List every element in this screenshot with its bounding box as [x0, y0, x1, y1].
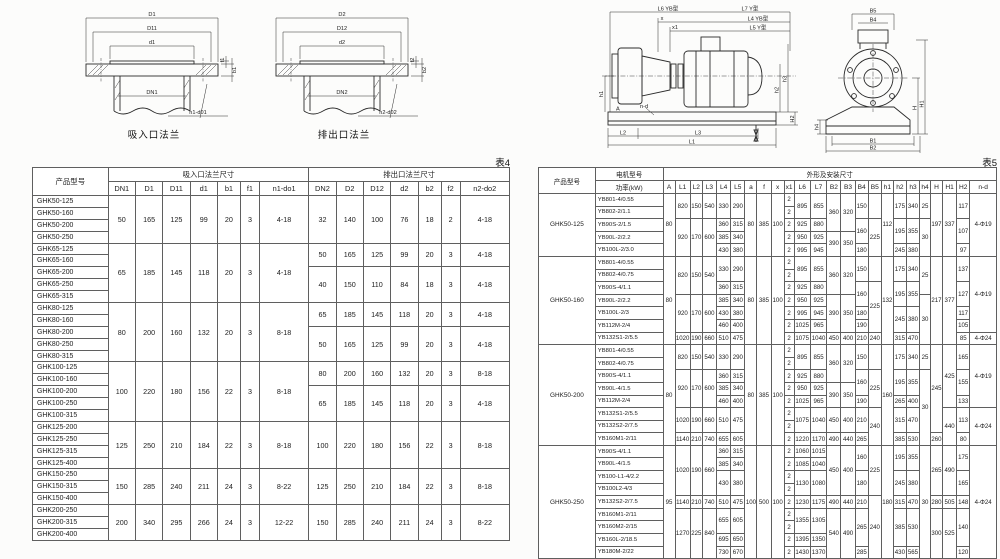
table-cell: 127 [957, 282, 970, 307]
table-cell: 440 [942, 408, 956, 446]
table-cell: 695 [717, 534, 731, 547]
table-cell: 32 [309, 196, 336, 244]
table-cell: 8-18 [460, 421, 509, 469]
table-cell: 320 [841, 194, 855, 232]
table-cell: 660 [702, 332, 716, 345]
table-cell: 25 [920, 256, 931, 294]
dim-label-l4: L4 YB型 [748, 15, 769, 23]
table-cell: 1355 [794, 508, 810, 533]
table-cell: 145 [363, 386, 390, 422]
table-cell: 1170 [810, 433, 826, 446]
model-cell: GHK100-250 [33, 398, 109, 410]
table-cell: 965 [810, 319, 826, 332]
table-cell: 150 [855, 345, 868, 370]
table-cell: 25 [920, 194, 931, 219]
table-cell: 4-18 [460, 386, 509, 422]
dim-label-nd: n-d [640, 104, 648, 110]
dim-label-l5: L5 Y型 [750, 24, 767, 32]
table-cell: 377 [942, 256, 956, 344]
table-cell: 337 [942, 194, 956, 257]
table-cell: 211 [391, 505, 418, 541]
dim-label-h4: h4 [815, 124, 821, 130]
table-cell: 385 [757, 256, 771, 344]
column-header-power: 功率(kW) [595, 181, 663, 194]
model-cell: GHK125-250 [33, 433, 109, 445]
table-row: GHK100-1251002201801562238-1880200160132… [33, 362, 510, 374]
table-cell: 30 [920, 294, 931, 344]
table-cell: 540 [827, 508, 841, 558]
model-cell: GHK50-200 [33, 219, 109, 231]
table-cell: 920 [675, 294, 690, 332]
table-cell: 380 [906, 307, 919, 332]
motor-cell: YB90L-4/1.5 [595, 382, 663, 395]
table-cell: 400 [841, 408, 855, 433]
table-cell: 240 [363, 505, 390, 541]
table-cell: 2 [784, 445, 794, 458]
table-cell: 565 [906, 546, 919, 559]
table-cell: 265 [855, 508, 868, 546]
table-cell: 475 [731, 332, 745, 345]
table-cell: 200 [135, 303, 162, 362]
table-cell: 240 [868, 332, 881, 345]
table-cell: 470 [906, 332, 919, 345]
table-cell: 510 [717, 332, 731, 345]
table-cell: 380 [731, 307, 745, 320]
table-cell: 80 [745, 194, 757, 257]
table-cell: 211 [190, 469, 217, 505]
table-cell: 1430 [794, 546, 810, 559]
discharge-flange-drawing: D2 D12 d2 DN2 f2 b2 n2-d02 排出口法兰 [258, 8, 430, 141]
model-cell: GHK65-160 [33, 255, 109, 267]
table-cell: 315 [731, 219, 745, 232]
table-cell: 1220 [794, 433, 810, 446]
table-cell: 360 [717, 445, 731, 458]
column-header: n-d [970, 181, 997, 194]
dim-label-dn2: DN2 [336, 90, 347, 96]
table-cell: 450 [827, 332, 841, 345]
table-cell: 740 [702, 433, 716, 446]
motor-cell: YB802-2/1.1 [595, 206, 663, 219]
table-cell: 385 [717, 294, 731, 307]
table-cell: 285 [135, 469, 162, 505]
table-cell: 105 [957, 319, 970, 332]
table-cell: 2 [784, 370, 794, 383]
table-cell: 355 [906, 370, 919, 395]
model-cell: GHK80-125 [33, 303, 109, 315]
table-cell: 315 [893, 408, 906, 433]
table-cell: 1075 [794, 408, 810, 433]
table-cell: 360 [827, 345, 841, 383]
column-header: x1 [784, 181, 794, 194]
table-cell: 225 [868, 282, 881, 332]
table-cell: 340 [906, 345, 919, 370]
model-cell: GHK100-200 [33, 386, 109, 398]
motor-cell: YB801-4/0.55 [595, 345, 663, 358]
table-cell: 265 [930, 445, 942, 495]
column-header: b2 [418, 182, 441, 196]
table-cell: 740 [702, 496, 716, 509]
model-cell: GHK50-250 [33, 231, 109, 243]
table-cell: 133 [957, 395, 970, 408]
table-cell: 76 [391, 196, 418, 244]
dim-label-f1: f1 [220, 58, 226, 63]
table-cell: 155 [957, 370, 970, 395]
table-cell: 2 [784, 256, 794, 269]
discharge-flange-caption: 排出口法兰 [258, 127, 430, 141]
table-cell: 175 [893, 345, 906, 370]
table-cell: 450 [827, 445, 841, 495]
table-cell: 24 [418, 505, 441, 541]
table-cell: 245 [893, 307, 906, 332]
table-cell: 160 [855, 282, 868, 307]
table-cell: 100 [771, 445, 784, 558]
motor-cell: YB160M2-2/15 [595, 521, 663, 534]
table-cell: 2 [784, 433, 794, 446]
table-cell: 965 [810, 395, 826, 408]
table-cell: 80 [309, 362, 336, 386]
model-cell: GHK100-160 [33, 374, 109, 386]
table-cell: 99 [391, 243, 418, 267]
table-cell: 8-18 [460, 362, 509, 386]
table-row: GHK125-2001252502101842238-1810022018015… [33, 421, 510, 433]
table-cell: 655 [717, 433, 731, 446]
table-cell: 20 [418, 326, 441, 362]
table-cell: 2 [784, 307, 794, 320]
motor-cell: YB100-L1-4/2.2 [595, 471, 663, 484]
table-cell: 390 [827, 294, 841, 332]
model-cell: GHK80-315 [33, 350, 109, 362]
table-cell: 25 [920, 345, 931, 370]
table-cell: 2 [784, 395, 794, 408]
table-cell: 210 [855, 408, 868, 433]
table-cell: 540 [702, 256, 716, 294]
table-cell: 210 [163, 421, 190, 469]
suction-flange-caption: 吸入口法兰 [68, 127, 240, 141]
table-cell: 175 [893, 256, 906, 281]
table-cell: 950 [794, 294, 810, 307]
table-cell: 330 [717, 256, 731, 281]
table-cell: 150 [690, 194, 702, 219]
table-cell: 65 [309, 303, 336, 327]
table-cell: 1040 [810, 458, 826, 471]
model-cell: GHK65-250 [33, 279, 109, 291]
table-cell: 150 [855, 256, 868, 281]
column-header: L4 [717, 181, 731, 194]
table-cell: 160 [363, 362, 390, 386]
table-cell: 430 [717, 471, 731, 496]
table-cell: 99 [190, 196, 217, 244]
table-cell: 30 [920, 219, 931, 257]
table-cell: 2 [784, 483, 794, 496]
table-cell: 8-22 [460, 505, 509, 541]
column-group-suction: 吸入口法兰尺寸 [108, 168, 309, 182]
table-cell: 2 [784, 357, 794, 370]
table-cell: 1020 [675, 445, 690, 495]
table-cell: 285 [855, 546, 868, 559]
table-cell: 340 [731, 458, 745, 471]
motor-cell: YB90S-4/1.1 [595, 370, 663, 383]
table-cell: 220 [135, 362, 162, 421]
table-cell: 2 [784, 332, 794, 345]
table-cell: 3 [240, 469, 259, 505]
table-cell: 1140 [675, 496, 690, 509]
motor-cell: YB801-4/0.55 [595, 256, 663, 269]
table-cell: 180 [855, 244, 868, 257]
column-group-dimensions: 外形及安装尺寸 [663, 168, 996, 181]
table-cell: 80 [663, 345, 675, 446]
table-cell: 80 [663, 194, 675, 257]
table-cell: 110 [363, 267, 390, 303]
dim-label-L2: L2 [620, 131, 626, 137]
column-header: DN2 [309, 182, 336, 196]
table-cell: 22 [418, 469, 441, 505]
dim-label-L3: L3 [695, 131, 701, 137]
table-cell: 1305 [810, 508, 826, 533]
table-cell: 20 [217, 196, 240, 244]
table-cell: 80 [663, 256, 675, 344]
table-cell: 360 [827, 194, 841, 232]
dim-label-d11: D11 [147, 26, 157, 32]
table-cell: 380 [906, 244, 919, 257]
table-cell: 225 [868, 219, 881, 257]
table-cell: 950 [794, 382, 810, 395]
motor-cell: YB100L2-4/3 [595, 483, 663, 496]
table-cell: 315 [893, 332, 906, 345]
dim-label-x: x [661, 16, 664, 22]
table-cell: 880 [810, 370, 826, 383]
motor-cell: YB100L-2/3 [595, 307, 663, 320]
motor-cell: YB132S2-2/7.5 [595, 420, 663, 433]
column-header: DN1 [108, 182, 135, 196]
table-cell: 650 [731, 534, 745, 547]
table-cell: 2 [784, 521, 794, 534]
table-cell: 350 [841, 382, 855, 407]
table-cell: 1130 [794, 471, 810, 496]
table-cell: 118 [190, 243, 217, 302]
table-cell: 945 [810, 307, 826, 320]
table-cell: 118 [391, 386, 418, 422]
model-cell: GHK100-315 [33, 410, 109, 422]
table-cell: 820 [675, 345, 690, 370]
dim-label-H1: H1 [920, 100, 926, 107]
table-cell: 605 [731, 433, 745, 446]
table-cell: 855 [810, 194, 826, 219]
table-cell: 150 [108, 469, 135, 505]
table-cell: 3 [441, 386, 460, 422]
model-cell: GHK50-125 [33, 196, 109, 208]
table-cell: 197 [930, 194, 942, 257]
motor-cell: YB90S-4/1.1 [595, 282, 663, 295]
table-row: GHK50-200YB801-4/0.558082015054033029080… [539, 345, 997, 358]
dim-label-A: A [616, 107, 620, 113]
dim-label-B1: B1 [870, 139, 877, 145]
table-cell: 156 [190, 362, 217, 421]
table-cell: 350 [841, 294, 855, 332]
table-cell: 112 [881, 194, 893, 257]
table-cell: 100 [108, 362, 135, 421]
table-cell: 80 [745, 256, 757, 344]
motor-cell: YB801-4/0.55 [595, 194, 663, 207]
table-cell: 185 [135, 243, 162, 302]
dim-label-h2: h2 [775, 87, 781, 93]
column-header: h4 [920, 181, 931, 194]
table-cell: 1060 [794, 445, 810, 458]
motor-cell: YB112M-2/4 [595, 395, 663, 408]
table-cell: 8-18 [259, 362, 308, 421]
table-cell: 2 [784, 345, 794, 358]
motor-cell: YB132S1-2/5.5 [595, 408, 663, 421]
motor-cell: YB90S-2/1.5 [595, 219, 663, 232]
table-cell: 20 [418, 386, 441, 422]
table-cell: 605 [731, 508, 745, 533]
table-cell: 50 [108, 196, 135, 244]
model-cell: GHK80-160 [33, 314, 109, 326]
table5-panel: 产品型号 电机型号 外形及安装尺寸 功率(kW)AL1L2L3L4L5afxx1… [538, 167, 997, 559]
table-cell: 355 [906, 282, 919, 307]
table-cell: 4-18 [259, 243, 308, 302]
table-cell: 4-18 [259, 196, 308, 244]
table-cell: 925 [810, 294, 826, 307]
table5-subheader: 功率(kW)AL1L2L3L4L5afxx1L6L7B2B3B4B5h1h2h3… [539, 181, 997, 194]
table-cell: 2 [784, 408, 794, 421]
table-cell: 670 [731, 546, 745, 559]
table-cell: 117 [957, 307, 970, 320]
column-header-model: 产品型号 [33, 168, 109, 196]
table-cell: 117 [957, 194, 970, 219]
table-cell: 430 [893, 546, 906, 559]
table-cell: 855 [810, 345, 826, 370]
table-cell: 925 [810, 382, 826, 395]
table-cell: 385 [893, 508, 906, 546]
table-cell: 500 [757, 445, 771, 558]
table-cell: 340 [906, 194, 919, 219]
motor-cell: YB132S2-2/7.5 [595, 496, 663, 509]
table-cell: 20 [418, 303, 441, 327]
table-cell: 400 [906, 395, 919, 408]
table-cell: 290 [731, 256, 745, 281]
table-cell: 18 [418, 196, 441, 244]
model-cell: GHK125-400 [33, 457, 109, 469]
column-group-discharge: 排出口法兰尺寸 [309, 168, 510, 182]
column-header: H1 [942, 181, 956, 194]
table-cell: 600 [702, 219, 716, 257]
table-row: GHK80-125802001601322038-186518514511820… [33, 303, 510, 315]
table-cell: 880 [810, 219, 826, 232]
column-header: H [930, 181, 942, 194]
table-cell: 165 [957, 471, 970, 496]
table-cell: 2 [784, 546, 794, 559]
table-cell: 18 [418, 267, 441, 303]
model-cell: GHK65-315 [33, 291, 109, 303]
table-cell: 300 [930, 508, 942, 558]
table-cell: 160 [163, 303, 190, 362]
table-cell: 530 [906, 433, 919, 446]
table-cell: 3 [240, 243, 259, 302]
table-cell: 315 [731, 370, 745, 383]
table-cell: 132 [190, 303, 217, 362]
table-cell: 97 [957, 244, 970, 257]
table-cell: 380 [731, 471, 745, 496]
dim-label-d1-outer: D1 [148, 12, 155, 18]
table-cell: 820 [675, 194, 690, 219]
column-header: D12 [363, 182, 390, 196]
column-header: d2 [391, 182, 418, 196]
table-cell: 655 [717, 508, 731, 533]
model-cell: GHK100-125 [33, 362, 109, 374]
table-cell: 385 [717, 382, 731, 395]
table-cell: 156 [391, 421, 418, 469]
model-cell: GHK150-250 [33, 469, 109, 481]
motor-cell: YB160L-2/18.5 [595, 534, 663, 547]
table-row: GHK65-125651851451182034-185016512599203… [33, 243, 510, 255]
table-cell: 2 [784, 319, 794, 332]
table-cell: 132 [881, 256, 893, 344]
table-cell: 400 [841, 445, 855, 495]
motor-cell: YB90L-4/1.5 [595, 458, 663, 471]
table-cell: 4-18 [460, 267, 509, 303]
table-cell: 330 [717, 194, 731, 219]
table-cell: 995 [794, 244, 810, 257]
model-cell: GHK200-400 [33, 528, 109, 540]
table-cell: 140 [957, 508, 970, 546]
column-header: B4 [855, 181, 868, 194]
suction-flange-svg: D1 D11 d1 DN1 f1 b1 n1-d01 [68, 8, 240, 123]
table-cell: 180 [881, 445, 893, 558]
table-cell: 175 [893, 194, 906, 219]
table-cell: 2 [441, 196, 460, 244]
column-header: x [771, 181, 784, 194]
table-cell: 8-18 [259, 421, 308, 469]
pump-end-svg: B5 B4 H1 H h4 B1 B2 [812, 4, 938, 156]
table-cell: 200 [108, 505, 135, 541]
table-cell: 2 [784, 382, 794, 395]
table-cell: 185 [336, 303, 363, 327]
table-cell: 65 [309, 386, 336, 422]
column-header: h3 [906, 181, 919, 194]
table-cell: 24 [217, 469, 240, 505]
table-cell: 340 [731, 231, 745, 244]
table-cell: 880 [810, 282, 826, 295]
table-cell: 210 [690, 496, 702, 509]
table-cell: 380 [906, 471, 919, 496]
table-cell: 20 [217, 243, 240, 302]
table-row: GHK50-160YB801-4/0.558082015054033029080… [539, 256, 997, 269]
flange-dimensions-table: 产品型号 吸入口法兰尺寸 排出口法兰尺寸 DN1D1D11d1b1f1n1-do… [32, 167, 510, 541]
table-cell: 265 [855, 433, 868, 446]
table-cell: 190 [690, 408, 702, 433]
table5-header-row: 产品型号 电机型号 外形及安装尺寸 [539, 168, 997, 181]
table-cell: 195 [893, 370, 906, 395]
table-cell: 995 [794, 307, 810, 320]
table-cell: 390 [827, 231, 841, 256]
dim-label-x1: x1 [672, 25, 678, 31]
model-cell: GHK80-200 [33, 326, 109, 338]
dim-label-n1-d01: n1-d01 [189, 110, 206, 116]
table-cell: 225 [690, 508, 702, 558]
column-header: B2 [827, 181, 841, 194]
table-cell: 450 [827, 408, 841, 433]
column-header: L1 [675, 181, 690, 194]
outline-mounting-dimensions-table: 产品型号 电机型号 外形及安装尺寸 功率(kW)AL1L2L3L4L5afxx1… [538, 167, 997, 559]
table-cell: 210 [363, 469, 390, 505]
table-cell: 100 [745, 445, 757, 558]
table-cell: 150 [690, 256, 702, 294]
table-cell: 2 [784, 231, 794, 244]
column-header: L5 [731, 181, 745, 194]
table-cell: 490 [841, 508, 855, 558]
motor-cell: YB180M-2/22 [595, 546, 663, 559]
table-cell: 320 [841, 256, 855, 294]
